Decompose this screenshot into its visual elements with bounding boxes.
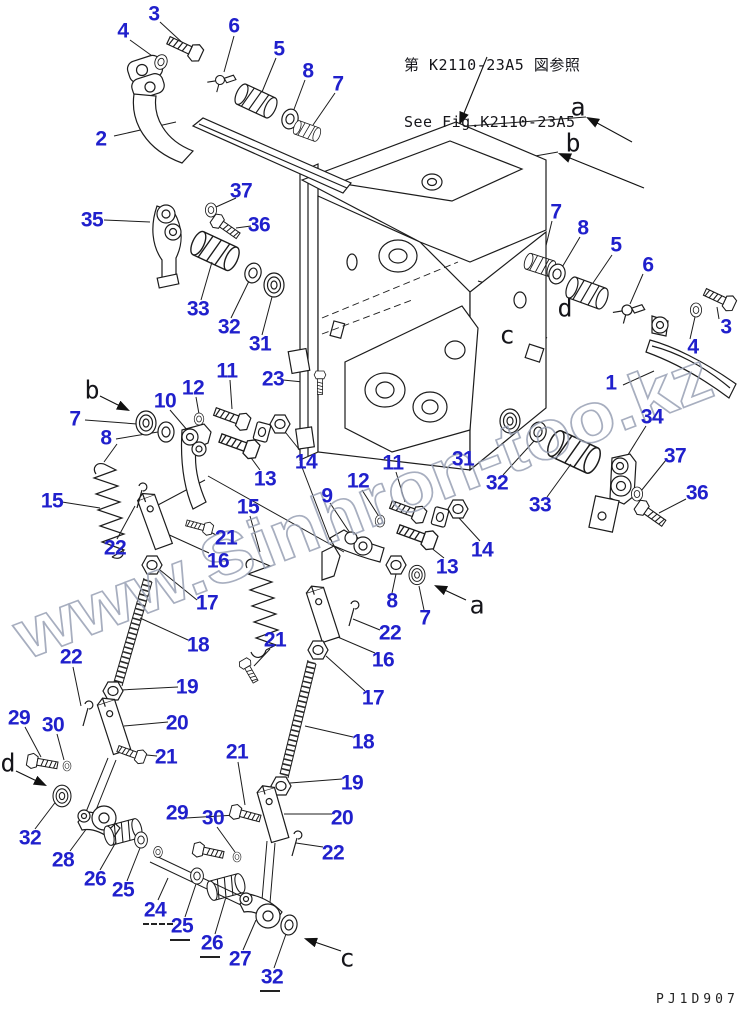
callout-33: 33 — [187, 299, 209, 320]
callout-9: 9 — [321, 486, 332, 507]
parts-diagram-page: www.Sinhron-too.kz 第 K2110-23A5 図参照 See … — [0, 0, 747, 1014]
callout-19: 19 — [176, 677, 198, 698]
callout-6: 6 — [642, 255, 653, 276]
callout-21: 21 — [226, 742, 248, 763]
callout-26: 26 — [84, 869, 106, 890]
callout-18: 18 — [187, 635, 209, 656]
callout-6: 6 — [228, 16, 239, 37]
callout-31: 31 — [452, 449, 474, 470]
callout-32: 32 — [218, 317, 240, 338]
callout-2: 2 — [95, 129, 106, 150]
callout-12: 12 — [347, 471, 369, 492]
dash-mark — [170, 939, 190, 941]
callout-20: 20 — [166, 713, 188, 734]
callout-3: 3 — [148, 4, 159, 25]
callout-28: 28 — [52, 850, 74, 871]
callout-21: 21 — [264, 630, 286, 651]
dash-mark — [260, 990, 280, 992]
callout-36: 36 — [248, 215, 270, 236]
callout-13: 13 — [254, 469, 276, 490]
callout-layer: 3465872353736333231785634231112107814131… — [0, 0, 747, 1014]
view-label-c: c — [339, 946, 354, 971]
callout-20: 20 — [331, 808, 353, 829]
view-label-b: b — [84, 378, 99, 403]
callout-10: 10 — [154, 391, 176, 412]
callout-32: 32 — [19, 828, 41, 849]
callout-32: 32 — [261, 967, 283, 988]
callout-30: 30 — [42, 715, 64, 736]
callout-8: 8 — [386, 591, 397, 612]
callout-25: 25 — [112, 880, 134, 901]
callout-8: 8 — [577, 218, 588, 239]
callout-16: 16 — [207, 551, 229, 572]
view-label-d: d — [0, 751, 15, 776]
callout-5: 5 — [273, 39, 284, 60]
view-label-d: d — [557, 296, 572, 321]
callout-37: 37 — [664, 446, 686, 467]
callout-35: 35 — [81, 210, 103, 231]
callout-5: 5 — [610, 235, 621, 256]
callout-29: 29 — [8, 708, 30, 729]
callout-11: 11 — [216, 361, 237, 382]
callout-7: 7 — [419, 608, 430, 629]
callout-3: 3 — [720, 317, 731, 338]
callout-34: 34 — [641, 407, 663, 428]
callout-26: 26 — [201, 933, 223, 954]
callout-14: 14 — [471, 540, 493, 561]
callout-33: 33 — [529, 495, 551, 516]
dash-mark — [143, 923, 173, 925]
callout-7: 7 — [69, 409, 80, 430]
callout-27: 27 — [229, 949, 251, 970]
callout-7: 7 — [332, 74, 343, 95]
callout-4: 4 — [117, 21, 128, 42]
dash-mark — [200, 956, 220, 958]
callout-13: 13 — [436, 557, 458, 578]
callout-15: 15 — [41, 491, 63, 512]
callout-22: 22 — [379, 623, 401, 644]
callout-15: 15 — [237, 497, 259, 518]
callout-25: 25 — [171, 916, 193, 937]
view-label-b: b — [565, 131, 580, 156]
callout-17: 17 — [196, 593, 218, 614]
callout-17: 17 — [362, 688, 384, 709]
callout-22: 22 — [322, 843, 344, 864]
callout-22: 22 — [60, 647, 82, 668]
callout-21: 21 — [215, 528, 237, 549]
callout-37: 37 — [230, 181, 252, 202]
callout-7: 7 — [550, 202, 561, 223]
callout-8: 8 — [302, 61, 313, 82]
callout-31: 31 — [249, 334, 271, 355]
callout-8: 8 — [100, 428, 111, 449]
callout-18: 18 — [352, 732, 374, 753]
view-label-c: c — [499, 323, 514, 348]
callout-4: 4 — [687, 337, 698, 358]
callout-16: 16 — [372, 650, 394, 671]
callout-22: 22 — [104, 538, 126, 559]
callout-19: 19 — [341, 773, 363, 794]
callout-24: 24 — [144, 900, 166, 921]
callout-30: 30 — [202, 808, 224, 829]
callout-11: 11 — [382, 453, 403, 474]
view-label-a: a — [570, 95, 585, 120]
callout-21: 21 — [155, 747, 177, 768]
callout-1: 1 — [605, 373, 616, 394]
callout-14: 14 — [295, 452, 317, 473]
callout-29: 29 — [166, 803, 188, 824]
callout-12: 12 — [182, 378, 204, 399]
callout-32: 32 — [486, 473, 508, 494]
callout-23: 23 — [262, 369, 284, 390]
view-label-a: a — [469, 593, 484, 618]
callout-36: 36 — [686, 483, 708, 504]
